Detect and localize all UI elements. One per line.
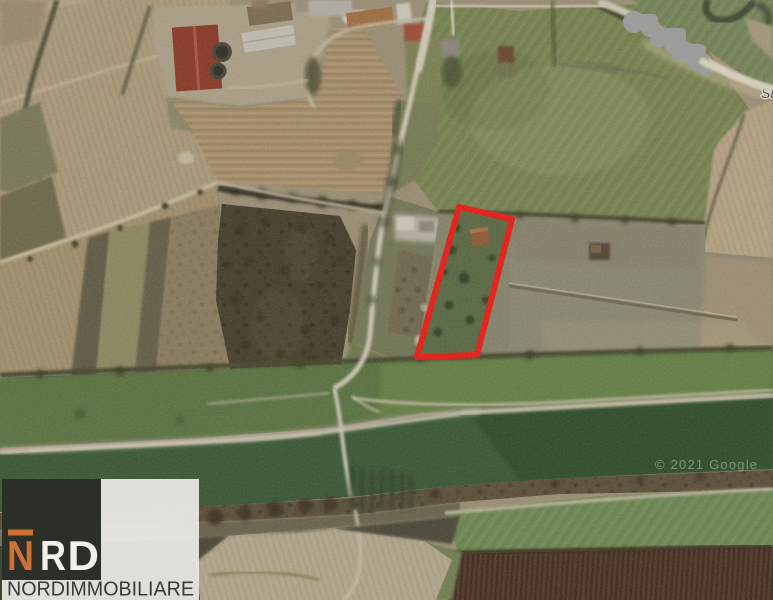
svg-text:R: R xyxy=(40,532,66,579)
svg-text:D: D xyxy=(68,532,100,579)
svg-text:NORDIMMOBILIARE: NORDIMMOBILIARE xyxy=(7,579,194,600)
svg-text:N: N xyxy=(7,532,34,579)
